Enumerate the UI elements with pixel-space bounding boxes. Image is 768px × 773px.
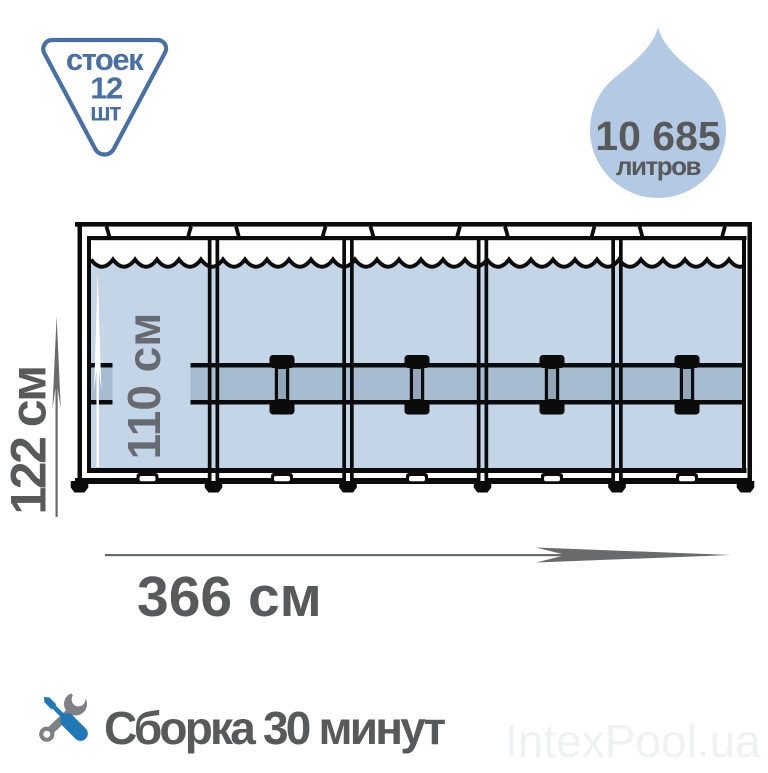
svg-text:366 см: 366 см [137,565,322,629]
svg-text:122 см: 122 см [1,367,57,514]
svg-text:шт: шт [90,99,121,127]
svg-text:IntexPool.ua: IntexPool.ua [505,715,761,767]
svg-text:110 см: 110 см [118,313,170,460]
svg-text:литров: литров [616,151,700,181]
svg-text:Сборка 30 минут: Сборка 30 минут [104,702,446,754]
